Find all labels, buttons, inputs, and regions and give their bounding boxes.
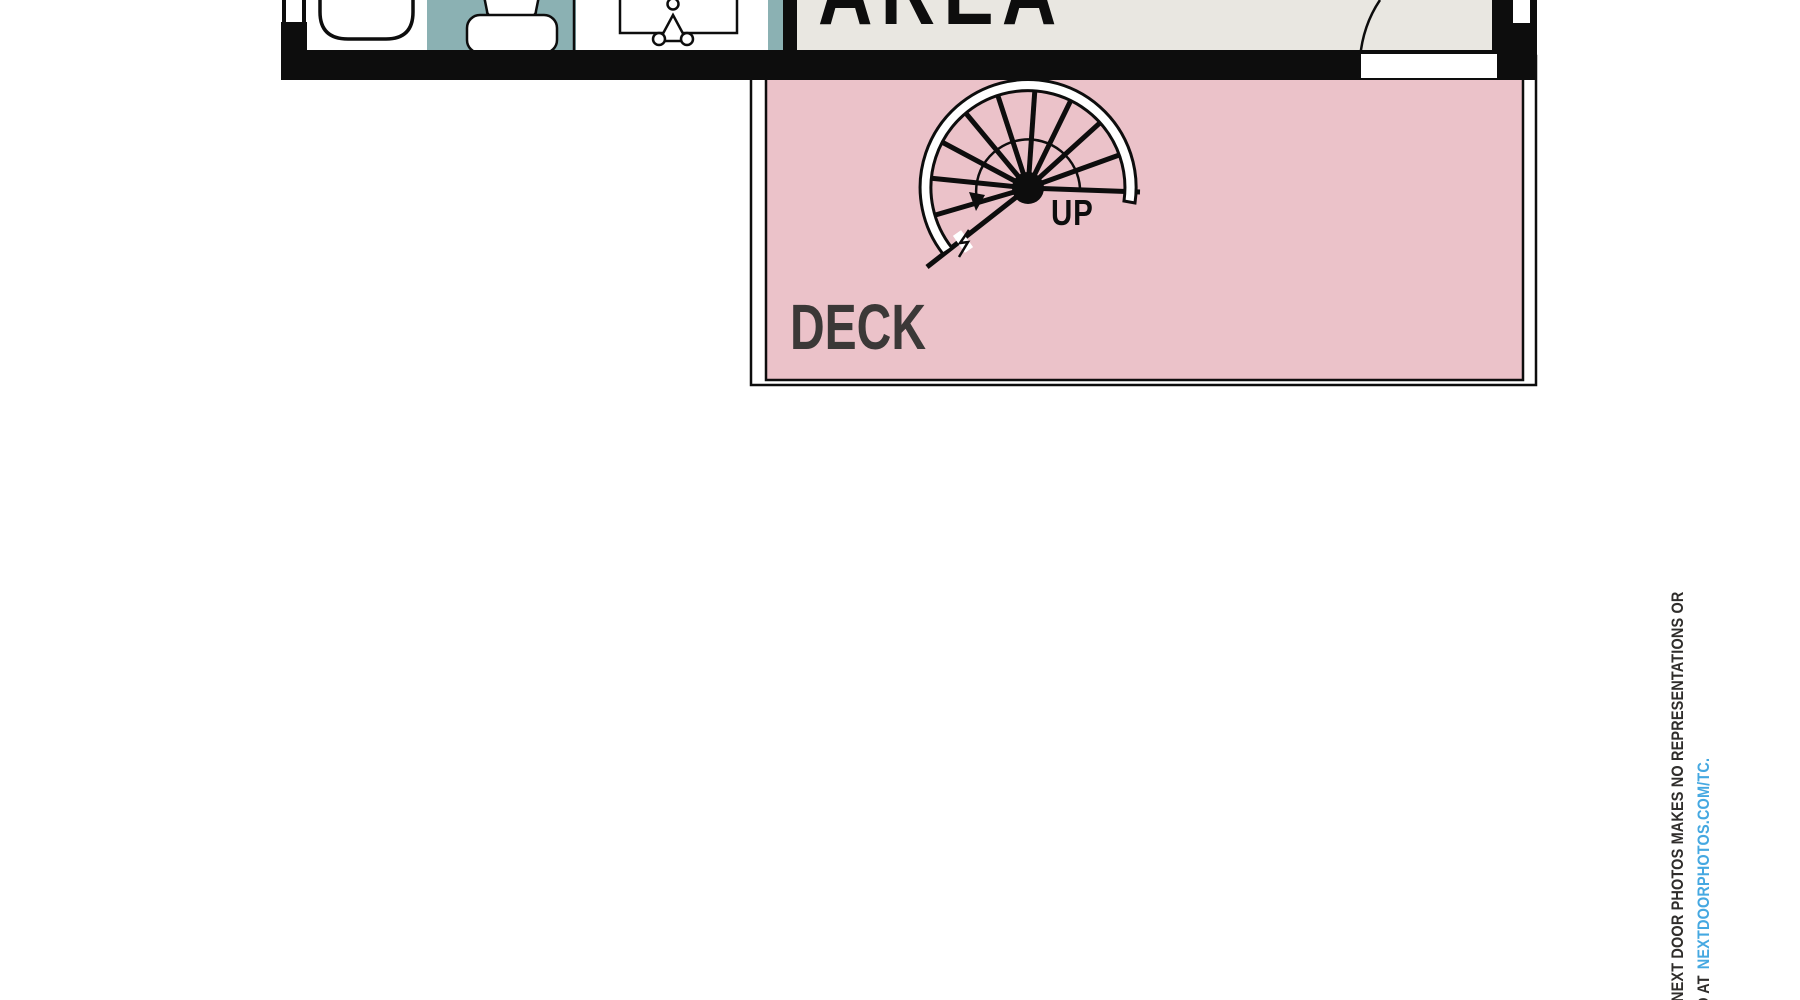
floor-plan-svg bbox=[0, 0, 1800, 1000]
faucet-handle-left-icon bbox=[653, 33, 665, 45]
stairs-up-label: UP bbox=[1051, 195, 1094, 231]
window-right-notch bbox=[1513, 0, 1530, 23]
disclaimer-line2: D ATNEXTDOORPHOTOS.COM/TC. bbox=[1694, 758, 1714, 1000]
disclaimer-line1: NEXT DOOR PHOTOS MAKES NO REPRESENTATION… bbox=[1668, 591, 1688, 1000]
staircase-hub bbox=[1012, 172, 1044, 204]
deck-room-label: DECK bbox=[790, 295, 926, 359]
wall-band bbox=[281, 50, 1537, 80]
door-opening bbox=[1360, 53, 1498, 79]
disclaimer-line2-prefix: D AT bbox=[1694, 975, 1713, 1000]
faucet-handle-right-icon bbox=[681, 33, 693, 45]
bathtub-fixture bbox=[320, 0, 413, 39]
wall-mid-bar bbox=[783, 0, 797, 52]
doorway-teal-strip bbox=[768, 0, 783, 53]
sink-drain-icon bbox=[668, 0, 679, 10]
toilet-tank bbox=[484, 0, 539, 16]
disclaimer-link: NEXTDOORPHOTOS.COM/TC. bbox=[1694, 758, 1713, 969]
toilet-bowl bbox=[467, 15, 557, 53]
area-room-label: AREA bbox=[818, 0, 1065, 39]
wall-left-column bbox=[281, 22, 307, 62]
floor-plan-canvas: AREA DECK UP NEXT DOOR PHOTOS MAKES NO R… bbox=[0, 0, 1800, 1000]
